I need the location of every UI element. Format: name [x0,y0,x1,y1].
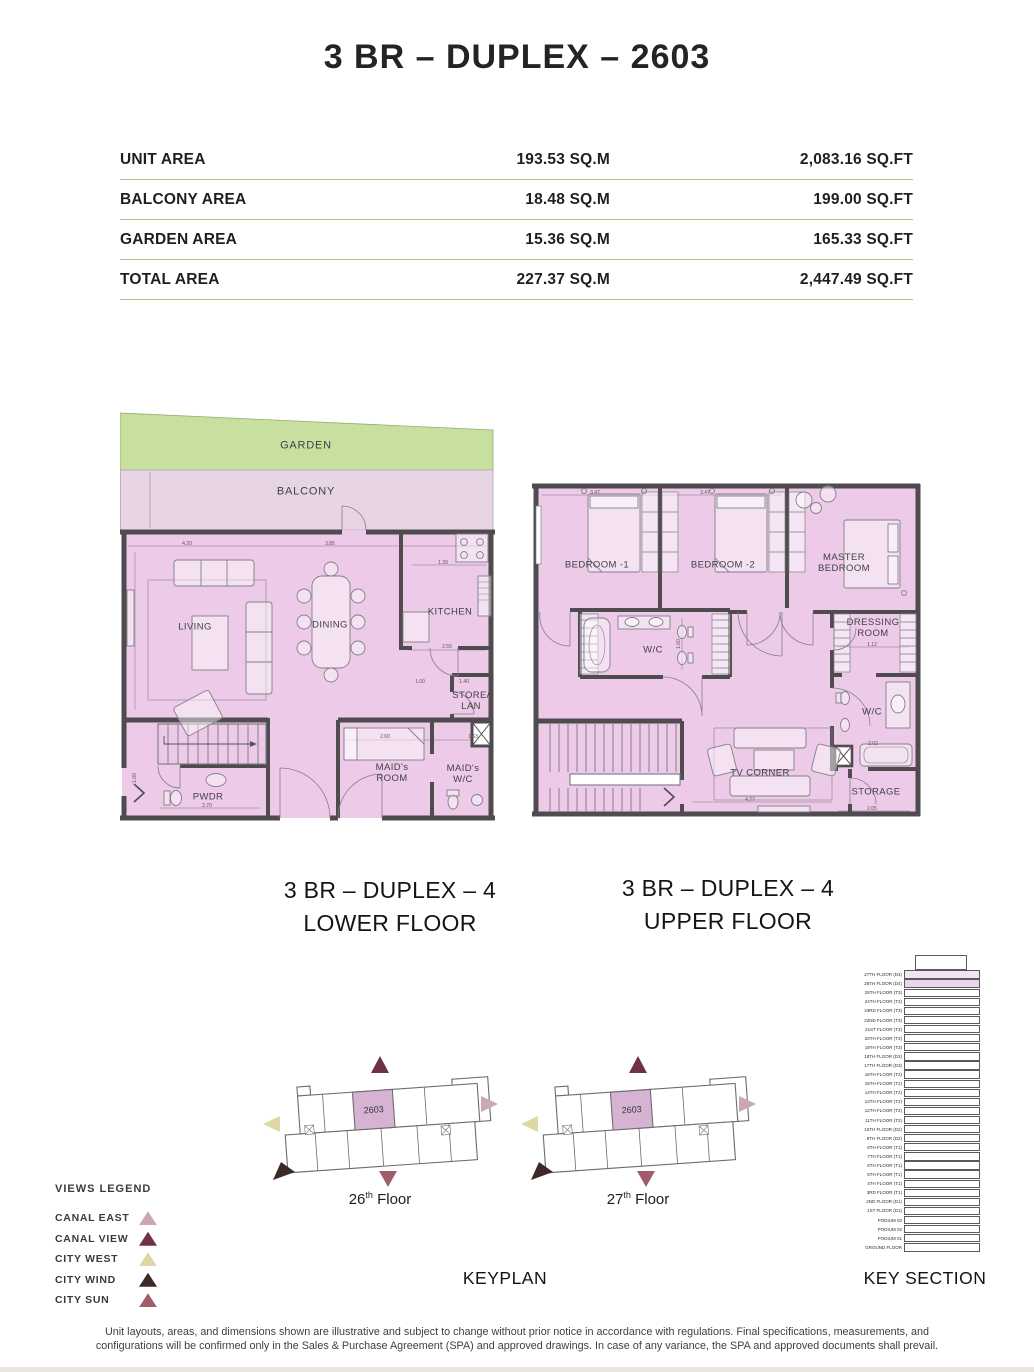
dimension-label: 1.12 [867,642,877,648]
dimension-label: 1.00 [415,679,425,685]
city-sun-arrow-icon [379,1171,397,1187]
key-section-floor-label: PODIUM 02 [848,1227,904,1232]
floor-number: 26 [349,1191,366,1208]
dimension-label: 1.30 [438,560,448,566]
key-section-floor-label: 9TH FLOOR (D2) [848,1136,904,1141]
key-section-floor-bar [904,1180,980,1188]
key-section-floor-bar [904,1098,980,1106]
key-section-floor-bar [904,1189,980,1197]
dimension-label: 1.00 [132,773,138,783]
key-section-roof [915,955,967,970]
upper-plan-caption-line1: 3 BR – DUPLEX – 4 [578,872,878,905]
floor-caption-27: 27th Floor [513,1190,763,1208]
key-section-floor-label: 7TH FLOOR (T1) [848,1154,904,1159]
legend-item-city-west: CITY WEST [55,1249,215,1270]
key-section-floor-label: 3RD FLOOR (T1) [848,1190,904,1195]
key-section-floor-label: PODIUM 01 [848,1236,904,1241]
city-sun-triangle-icon [139,1293,157,1307]
key-section-floor-row: 10TH FLOOR (D2) [848,1125,988,1134]
key-section-floor-label: 18TH FLOOR (D3) [848,1054,904,1059]
key-section-floor-label: 20TH FLOOR (T3) [848,1036,904,1041]
city-west-arrow-icon [521,1116,538,1132]
key-section-floor-row: 20TH FLOOR (T3) [848,1034,988,1043]
area-sqft-value: 199.00 SQ.FT [610,191,913,209]
canal-east-triangle-icon [139,1211,157,1225]
dimension-label: 3.85 [325,541,335,547]
floor-caption-26: 26th Floor [255,1190,505,1208]
key-section-floor-bar [904,1225,980,1233]
key-section-floor-row: 18TH FLOOR (D3) [848,1052,988,1061]
unit-number-label: 2603 [363,1104,384,1115]
legend-item-canal-view: CANAL VIEW [55,1229,215,1250]
key-section-floor-label: 12TH FLOOR (T2) [848,1108,904,1113]
key-section-floor-label: 23RD FLOOR (T3) [848,1008,904,1013]
dimension-label: 2.60 [380,734,390,740]
key-section-floor-label: 16TH FLOOR (T2) [848,1072,904,1077]
legend-label: CITY WIND [55,1274,137,1286]
dimension-label: 2.05 [867,806,877,812]
dimension-label: 3.47 [590,490,600,496]
city-west-arrow-icon [263,1116,280,1132]
floor-suffix: th [365,1190,373,1200]
legend-label: CANAL EAST [55,1212,137,1224]
legend-label: CITY WEST [55,1253,137,1265]
key-section-floor-row: 24TH FLOOR (T3) [848,997,988,1006]
key-section-floor-bar [904,1080,980,1088]
area-sqm-value: 227.37 SQ.M [430,271,610,289]
key-section-floor-label: 25TH FLOOR (T3) [848,990,904,995]
key-section-floor-bar [904,1152,980,1160]
legend-item-canal-east: CANAL EAST [55,1208,215,1229]
key-section-floor-bar [904,1025,980,1033]
dimension-label: 1.60 [676,639,682,649]
key-section-floor-bar [904,1061,980,1069]
upper-floor-plan: BEDROOM -1 BEDROOM -2 MASTER BEDROOM W/C… [532,478,922,818]
dimension-label: 2.55 [442,644,452,650]
key-section-floor-row: 23RD FLOOR (T3) [848,1006,988,1015]
key-section-floor-label: 6TH FLOOR (T1) [848,1163,904,1168]
upper-plan-dimensions: 3.473.471.121.602.024.772.05 [532,478,922,818]
area-row-label: GARDEN AREA [120,231,430,249]
key-section-floor-bar [904,1043,980,1051]
table-row: TOTAL AREA 227.37 SQ.M 2,447.49 SQ.FT [120,260,913,300]
key-section-floor-row: 16TH FLOOR (T2) [848,1070,988,1079]
key-section-floor-row: 15TH FLOOR (T2) [848,1079,988,1088]
keyplan-drawing: 2603 [255,1040,505,1190]
key-section-floor-row: 25TH FLOOR (T3) [848,988,988,997]
unit-number-label: 2603 [621,1104,642,1115]
key-section-floor-bar [904,1016,980,1024]
views-legend: VIEWS LEGEND CANAL EAST CANAL VIEW CITY … [55,1183,215,1311]
key-section-floor-label: 1ST FLOOR (D1) [848,1208,904,1213]
key-section-floor-bar [904,1052,980,1060]
key-section-floor-label: GROUND FLOOR [848,1245,904,1250]
key-section-floor-bar [904,989,980,997]
disclaimer-line2: configurations will be confirmed only in… [20,1340,1014,1354]
key-section-floor-bar [904,1243,980,1251]
key-section-floor-label: 24TH FLOOR (T3) [848,999,904,1004]
key-section-floor-row: 17TH FLOOR (D3) [848,1061,988,1070]
dimension-label: 2.70 [202,803,212,809]
key-section-floor-bar [904,1216,980,1224]
key-section-floor-row: 11TH FLOOR (T2) [848,1116,988,1125]
key-section-floor-bar [904,1134,980,1142]
key-section-floor-bar [904,1161,980,1169]
key-section-floor-row: 8TH FLOOR (T1) [848,1143,988,1152]
area-sqm-value: 18.48 SQ.M [430,191,610,209]
key-section-floor-row: 12TH FLOOR (T2) [848,1106,988,1115]
key-section-floor-row: 7TH FLOOR (T1) [848,1152,988,1161]
key-section-floor-row: PODIUM 02 [848,1225,988,1234]
key-section-floor-label: 4TH FLOOR (T1) [848,1181,904,1186]
key-section-floor-bar [904,1143,980,1151]
building-outline: 2603 [540,1074,751,1173]
area-row-label: TOTAL AREA [120,271,430,289]
key-section-floor-bar [904,1089,980,1097]
floor-word: Floor [377,1191,411,1208]
key-section-floor-row: 5TH FLOOR (T1) [848,1170,988,1179]
upper-plan-caption: 3 BR – DUPLEX – 4 UPPER FLOOR [578,872,878,938]
lower-floor-plan: GARDEN BALCONY LIVING DINING KITCHEN STO… [120,410,495,835]
lower-plan-caption: 3 BR – DUPLEX – 4 LOWER FLOOR [240,874,540,940]
area-table: UNIT AREA 193.53 SQ.M 2,083.16 SQ.FT BAL… [120,140,913,300]
key-section-floor-label: PODIUM 03 [848,1218,904,1223]
key-section-floor-bar [904,1034,980,1042]
key-section-floor-bar [904,1198,980,1206]
key-section-floor-bar [904,979,980,987]
disclaimer-text: Unit layouts, areas, and dimensions show… [20,1326,1014,1353]
key-section-floor-row: 6TH FLOOR (T1) [848,1161,988,1170]
key-section-floor-row: PODIUM 01 [848,1234,988,1243]
canal-view-triangle-icon [139,1232,157,1246]
key-section-floor-label: 2ND FLOOR (D1) [848,1199,904,1204]
key-section-floor-bar [904,1070,980,1078]
legend-label: CITY SUN [55,1294,137,1306]
building-outline: 2603 [282,1074,493,1173]
key-section-floor-label: 8TH FLOOR (T1) [848,1145,904,1150]
area-sqft-value: 2,447.49 SQ.FT [610,271,913,289]
dimension-label: 2.02 [868,741,878,747]
key-section-floor-bar [904,998,980,1006]
key-section-floor-label: 11TH FLOOR (T2) [848,1118,904,1123]
city-wind-triangle-icon [139,1273,157,1287]
key-section: 27TH FLOOR (D4)26TH FLOOR (D4)25TH FLOOR… [848,955,988,1252]
city-west-triangle-icon [139,1252,157,1266]
page-title: 3 BR – DUPLEX – 2603 [0,38,1034,77]
key-section-floor-bar [904,1207,980,1215]
key-section-floor-row: GROUND FLOOR [848,1243,988,1252]
area-sqft-value: 2,083.16 SQ.FT [610,151,913,169]
floor-word: Floor [635,1191,669,1208]
dimension-label: 4.20 [182,541,192,547]
key-section-floor-bar [904,1170,980,1178]
key-section-floor-label: 14TH FLOOR (T2) [848,1090,904,1095]
city-sun-arrow-icon [637,1171,655,1187]
key-section-floor-label: 5TH FLOOR (T1) [848,1172,904,1177]
area-sqm-value: 193.53 SQ.M [430,151,610,169]
area-sqft-value: 165.33 SQ.FT [610,231,913,249]
dimension-label: 3.47 [700,490,710,496]
canal-view-arrow-icon [371,1056,389,1073]
key-section-floor-row: 2ND FLOOR (D1) [848,1197,988,1206]
key-section-floor-row: 4TH FLOOR (T1) [848,1179,988,1188]
key-section-floor-row: 21ST FLOOR (T3) [848,1025,988,1034]
key-section-floor-label: 22ND FLOOR (T3) [848,1018,904,1023]
key-section-floor-label: 13TH FLOOR (T2) [848,1099,904,1104]
disclaimer-line1: Unit layouts, areas, and dimensions show… [20,1326,1014,1340]
key-section-floor-bar [904,1125,980,1133]
upper-plan-caption-line2: UPPER FLOOR [578,905,878,938]
table-row: UNIT AREA 193.53 SQ.M 2,083.16 SQ.FT [120,140,913,180]
key-section-floor-label: 10TH FLOOR (D2) [848,1127,904,1132]
legend-item-city-sun: CITY SUN [55,1290,215,1311]
lower-plan-caption-line2: LOWER FLOOR [240,907,540,940]
area-row-label: UNIT AREA [120,151,430,169]
area-row-label: BALCONY AREA [120,191,430,209]
keyplan-26th-floor: 2603 26th Floor [255,1040,505,1210]
key-section-floor-row: 13TH FLOOR (T2) [848,1097,988,1106]
key-section-floor-bar [904,1107,980,1115]
keyplan-27th-floor: 2603 27th Floor [513,1040,763,1210]
keyplan-section-label: KEYPLAN [420,1268,590,1289]
key-section-floor-row: 14TH FLOOR (T2) [848,1088,988,1097]
key-section-floor-label: 19TH FLOOR (T3) [848,1045,904,1050]
page-bottom-strip [0,1367,1034,1372]
key-section-floor-label: 21ST FLOOR (T3) [848,1027,904,1032]
lower-plan-caption-line1: 3 BR – DUPLEX – 4 [240,874,540,907]
key-section-floor-row: 22ND FLOOR (T3) [848,1015,988,1024]
key-section-rows: 27TH FLOOR (D4)26TH FLOOR (D4)25TH FLOOR… [848,970,988,1252]
keyplan-drawing: 2603 [513,1040,763,1190]
legend-item-city-wind: CITY WIND [55,1270,215,1291]
table-row: GARDEN AREA 15.36 SQ.M 165.33 SQ.FT [120,220,913,260]
key-section-floor-row: 27TH FLOOR (D4) [848,970,988,979]
dimension-label: 4.77 [745,797,755,803]
dimension-label: 1.40 [459,679,469,685]
key-section-floor-row: 1ST FLOOR (D1) [848,1206,988,1215]
table-row: BALCONY AREA 18.48 SQ.M 199.00 SQ.FT [120,180,913,220]
key-section-floor-label: 27TH FLOOR (D4) [848,972,904,977]
key-section-label: KEY SECTION [830,1268,1020,1289]
key-section-floor-row: 3RD FLOOR (T1) [848,1188,988,1197]
key-section-floor-label: 17TH FLOOR (D3) [848,1063,904,1068]
key-section-floor-bar [904,1234,980,1242]
lower-plan-dimensions: 4.203.851.302.551.001.402.601.632.701.00 [120,410,495,835]
key-section-floor-bar [904,970,980,978]
key-section-floor-row: 9TH FLOOR (D2) [848,1134,988,1143]
key-section-floor-row: 26TH FLOOR (D4) [848,979,988,988]
floor-suffix: th [623,1190,631,1200]
key-section-floor-row: 19TH FLOOR (T3) [848,1043,988,1052]
key-section-floor-bar [904,1007,980,1015]
views-legend-title: VIEWS LEGEND [55,1183,215,1195]
key-section-floor-bar [904,1116,980,1124]
canal-view-arrow-icon [629,1056,647,1073]
key-section-floor-label: 15TH FLOOR (T2) [848,1081,904,1086]
area-sqm-value: 15.36 SQ.M [430,231,610,249]
key-section-floor-label: 26TH FLOOR (D4) [848,981,904,986]
floor-number: 27 [607,1191,624,1208]
dimension-label: 1.63 [468,734,478,740]
key-section-floor-row: PODIUM 03 [848,1216,988,1225]
legend-label: CANAL VIEW [55,1233,137,1245]
